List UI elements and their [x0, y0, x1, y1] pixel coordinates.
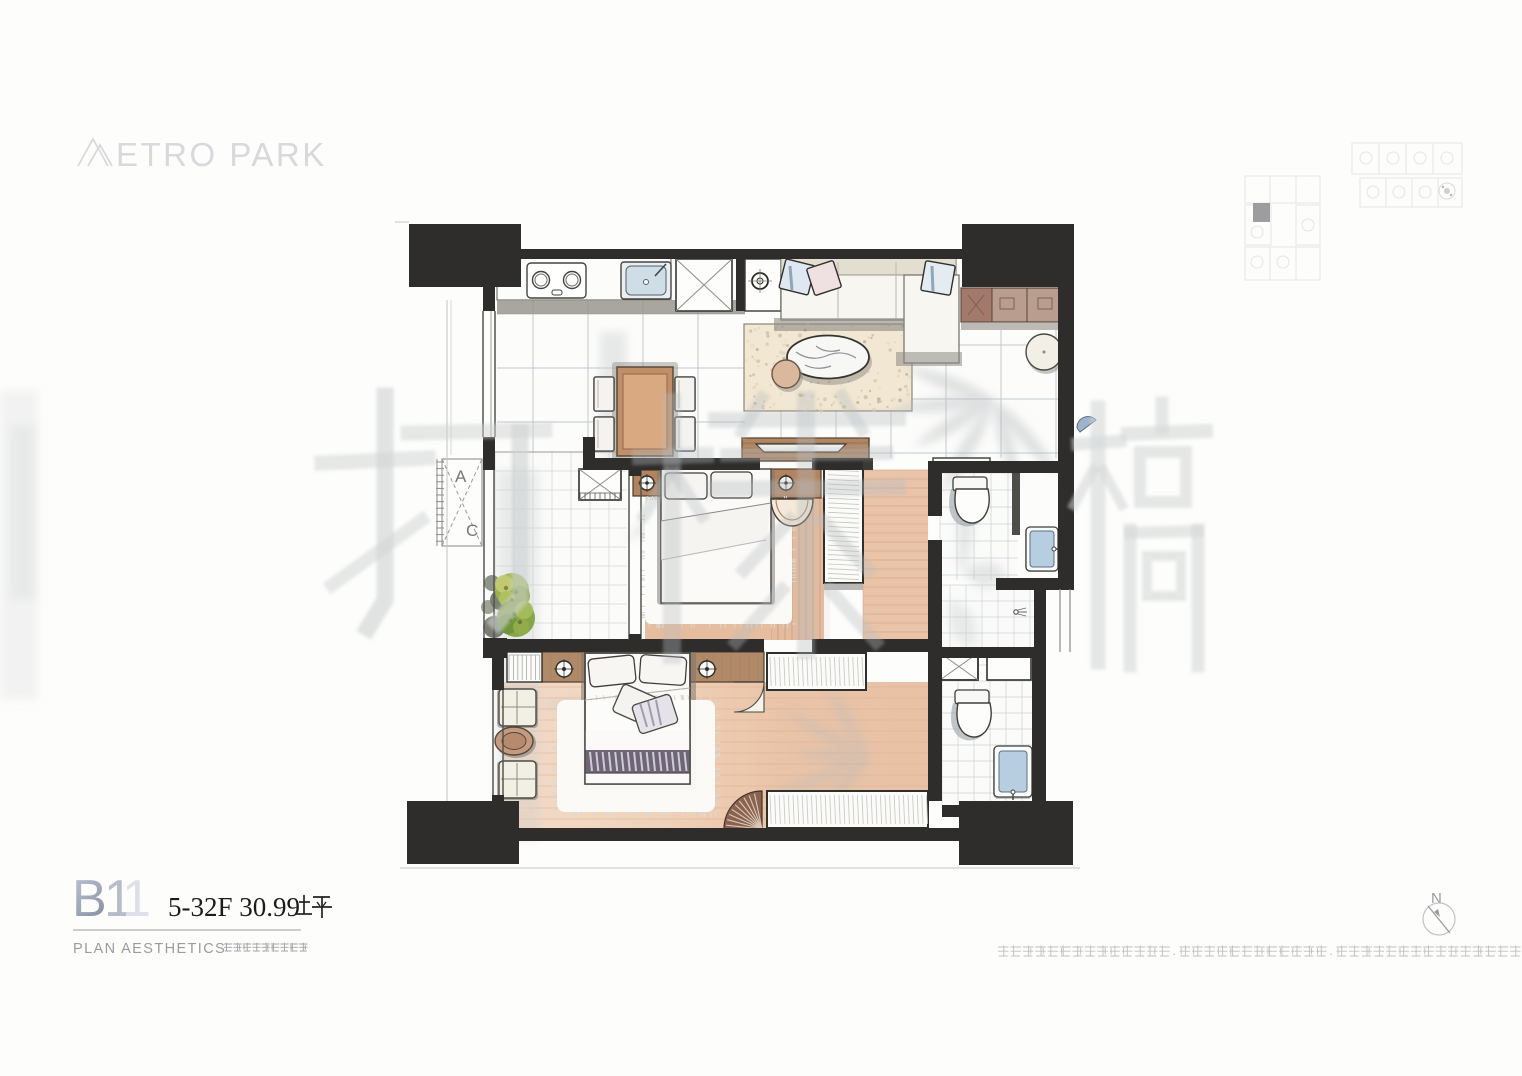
svg-text:1: 1	[122, 870, 151, 928]
svg-text:PLAN AESTHETICS: PLAN AESTHETICS	[73, 941, 226, 957]
svg-text:.: .	[1173, 944, 1176, 958]
svg-text:C: C	[466, 521, 478, 540]
svg-text:ETRO PARK: ETRO PARK	[116, 136, 327, 173]
svg-text:B: B	[72, 870, 107, 928]
svg-text:.: .	[1329, 944, 1332, 958]
svg-text:5-32F 30.99: 5-32F 30.99	[168, 892, 300, 922]
svg-text:A: A	[455, 467, 467, 486]
